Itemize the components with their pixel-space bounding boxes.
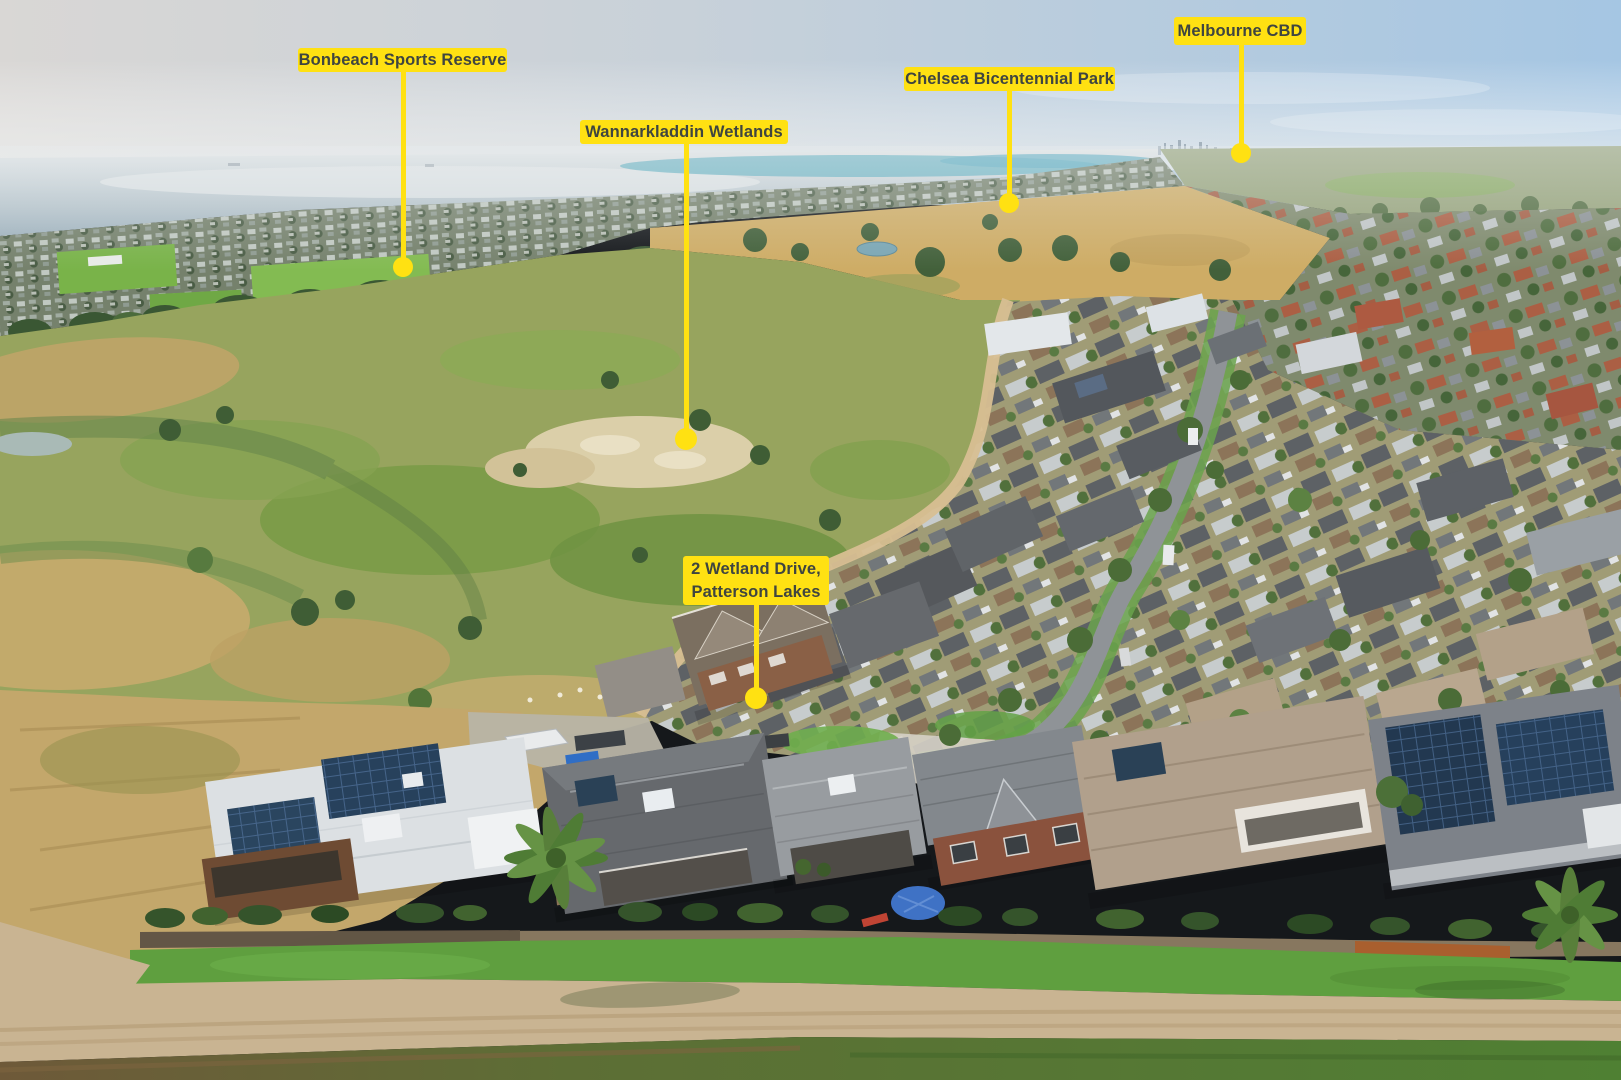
pointer-dot	[745, 687, 767, 709]
callout-label: Bonbeach Sports Reserve	[298, 48, 507, 72]
callout-label: Melbourne CBD	[1174, 17, 1306, 45]
callout-text-line: Bonbeach Sports Reserve	[299, 49, 507, 72]
pointer-line	[754, 603, 759, 698]
pointer-dot	[393, 257, 413, 277]
callout-wannarkladdin-wetlands: Wannarkladdin Wetlands	[0, 0, 1621, 1080]
callout-text-line: 2 Wetland Drive,	[691, 558, 821, 581]
callout-label: Chelsea Bicentennial Park	[904, 67, 1115, 91]
callout-property-address: 2 Wetland Drive,Patterson Lakes	[0, 0, 1621, 1080]
callout-bonbeach-sports-reserve: Bonbeach Sports Reserve	[0, 0, 1621, 1080]
pointer-dot	[675, 428, 697, 450]
aerial-photo: Bonbeach Sports ReserveWannarkladdin Wet…	[0, 0, 1621, 1080]
pointer-dot	[1231, 143, 1251, 163]
pointer-line	[401, 70, 406, 267]
callout-layer: Bonbeach Sports ReserveWannarkladdin Wet…	[0, 0, 1621, 1080]
pointer-dot	[999, 193, 1019, 213]
callout-text-line: Patterson Lakes	[692, 581, 821, 604]
callout-chelsea-bicentennial-park: Chelsea Bicentennial Park	[0, 0, 1621, 1080]
callout-label: Wannarkladdin Wetlands	[580, 120, 788, 144]
callout-text-line: Chelsea Bicentennial Park	[905, 68, 1114, 91]
pointer-line	[1239, 43, 1244, 153]
callout-text-line: Wannarkladdin Wetlands	[585, 121, 782, 144]
callout-text-line: Melbourne CBD	[1177, 20, 1302, 43]
callout-label: 2 Wetland Drive,Patterson Lakes	[683, 556, 829, 605]
pointer-line	[684, 142, 689, 439]
pointer-line	[1007, 89, 1012, 203]
callout-melbourne-cbd: Melbourne CBD	[0, 0, 1621, 1080]
